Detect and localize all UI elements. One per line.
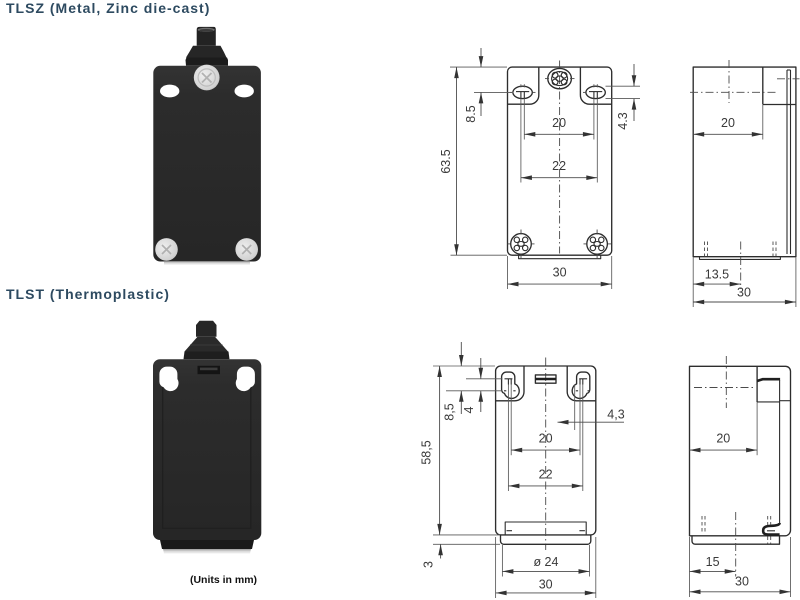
svg-text:8.5: 8.5 [464, 105, 478, 122]
svg-text:30: 30 [539, 578, 553, 592]
svg-text:ø 24: ø 24 [533, 555, 558, 569]
svg-text:4,3: 4,3 [607, 408, 624, 422]
svg-text:13.5: 13.5 [705, 268, 729, 282]
svg-text:30: 30 [735, 574, 749, 588]
svg-text:22: 22 [552, 159, 566, 173]
svg-text:20: 20 [721, 116, 735, 130]
svg-text:20: 20 [539, 432, 553, 446]
svg-text:30: 30 [737, 286, 751, 300]
svg-text:4.3: 4.3 [616, 112, 630, 129]
svg-text:8,5: 8,5 [443, 403, 457, 420]
svg-text:30: 30 [553, 266, 567, 280]
svg-text:58,5: 58,5 [419, 440, 433, 464]
svg-text:63.5: 63.5 [439, 149, 453, 173]
svg-text:20: 20 [716, 432, 730, 446]
svg-text:15: 15 [706, 555, 720, 569]
svg-text:22: 22 [539, 467, 553, 481]
svg-text:4: 4 [462, 406, 476, 413]
svg-text:20: 20 [552, 116, 566, 130]
svg-text:3: 3 [422, 561, 436, 568]
